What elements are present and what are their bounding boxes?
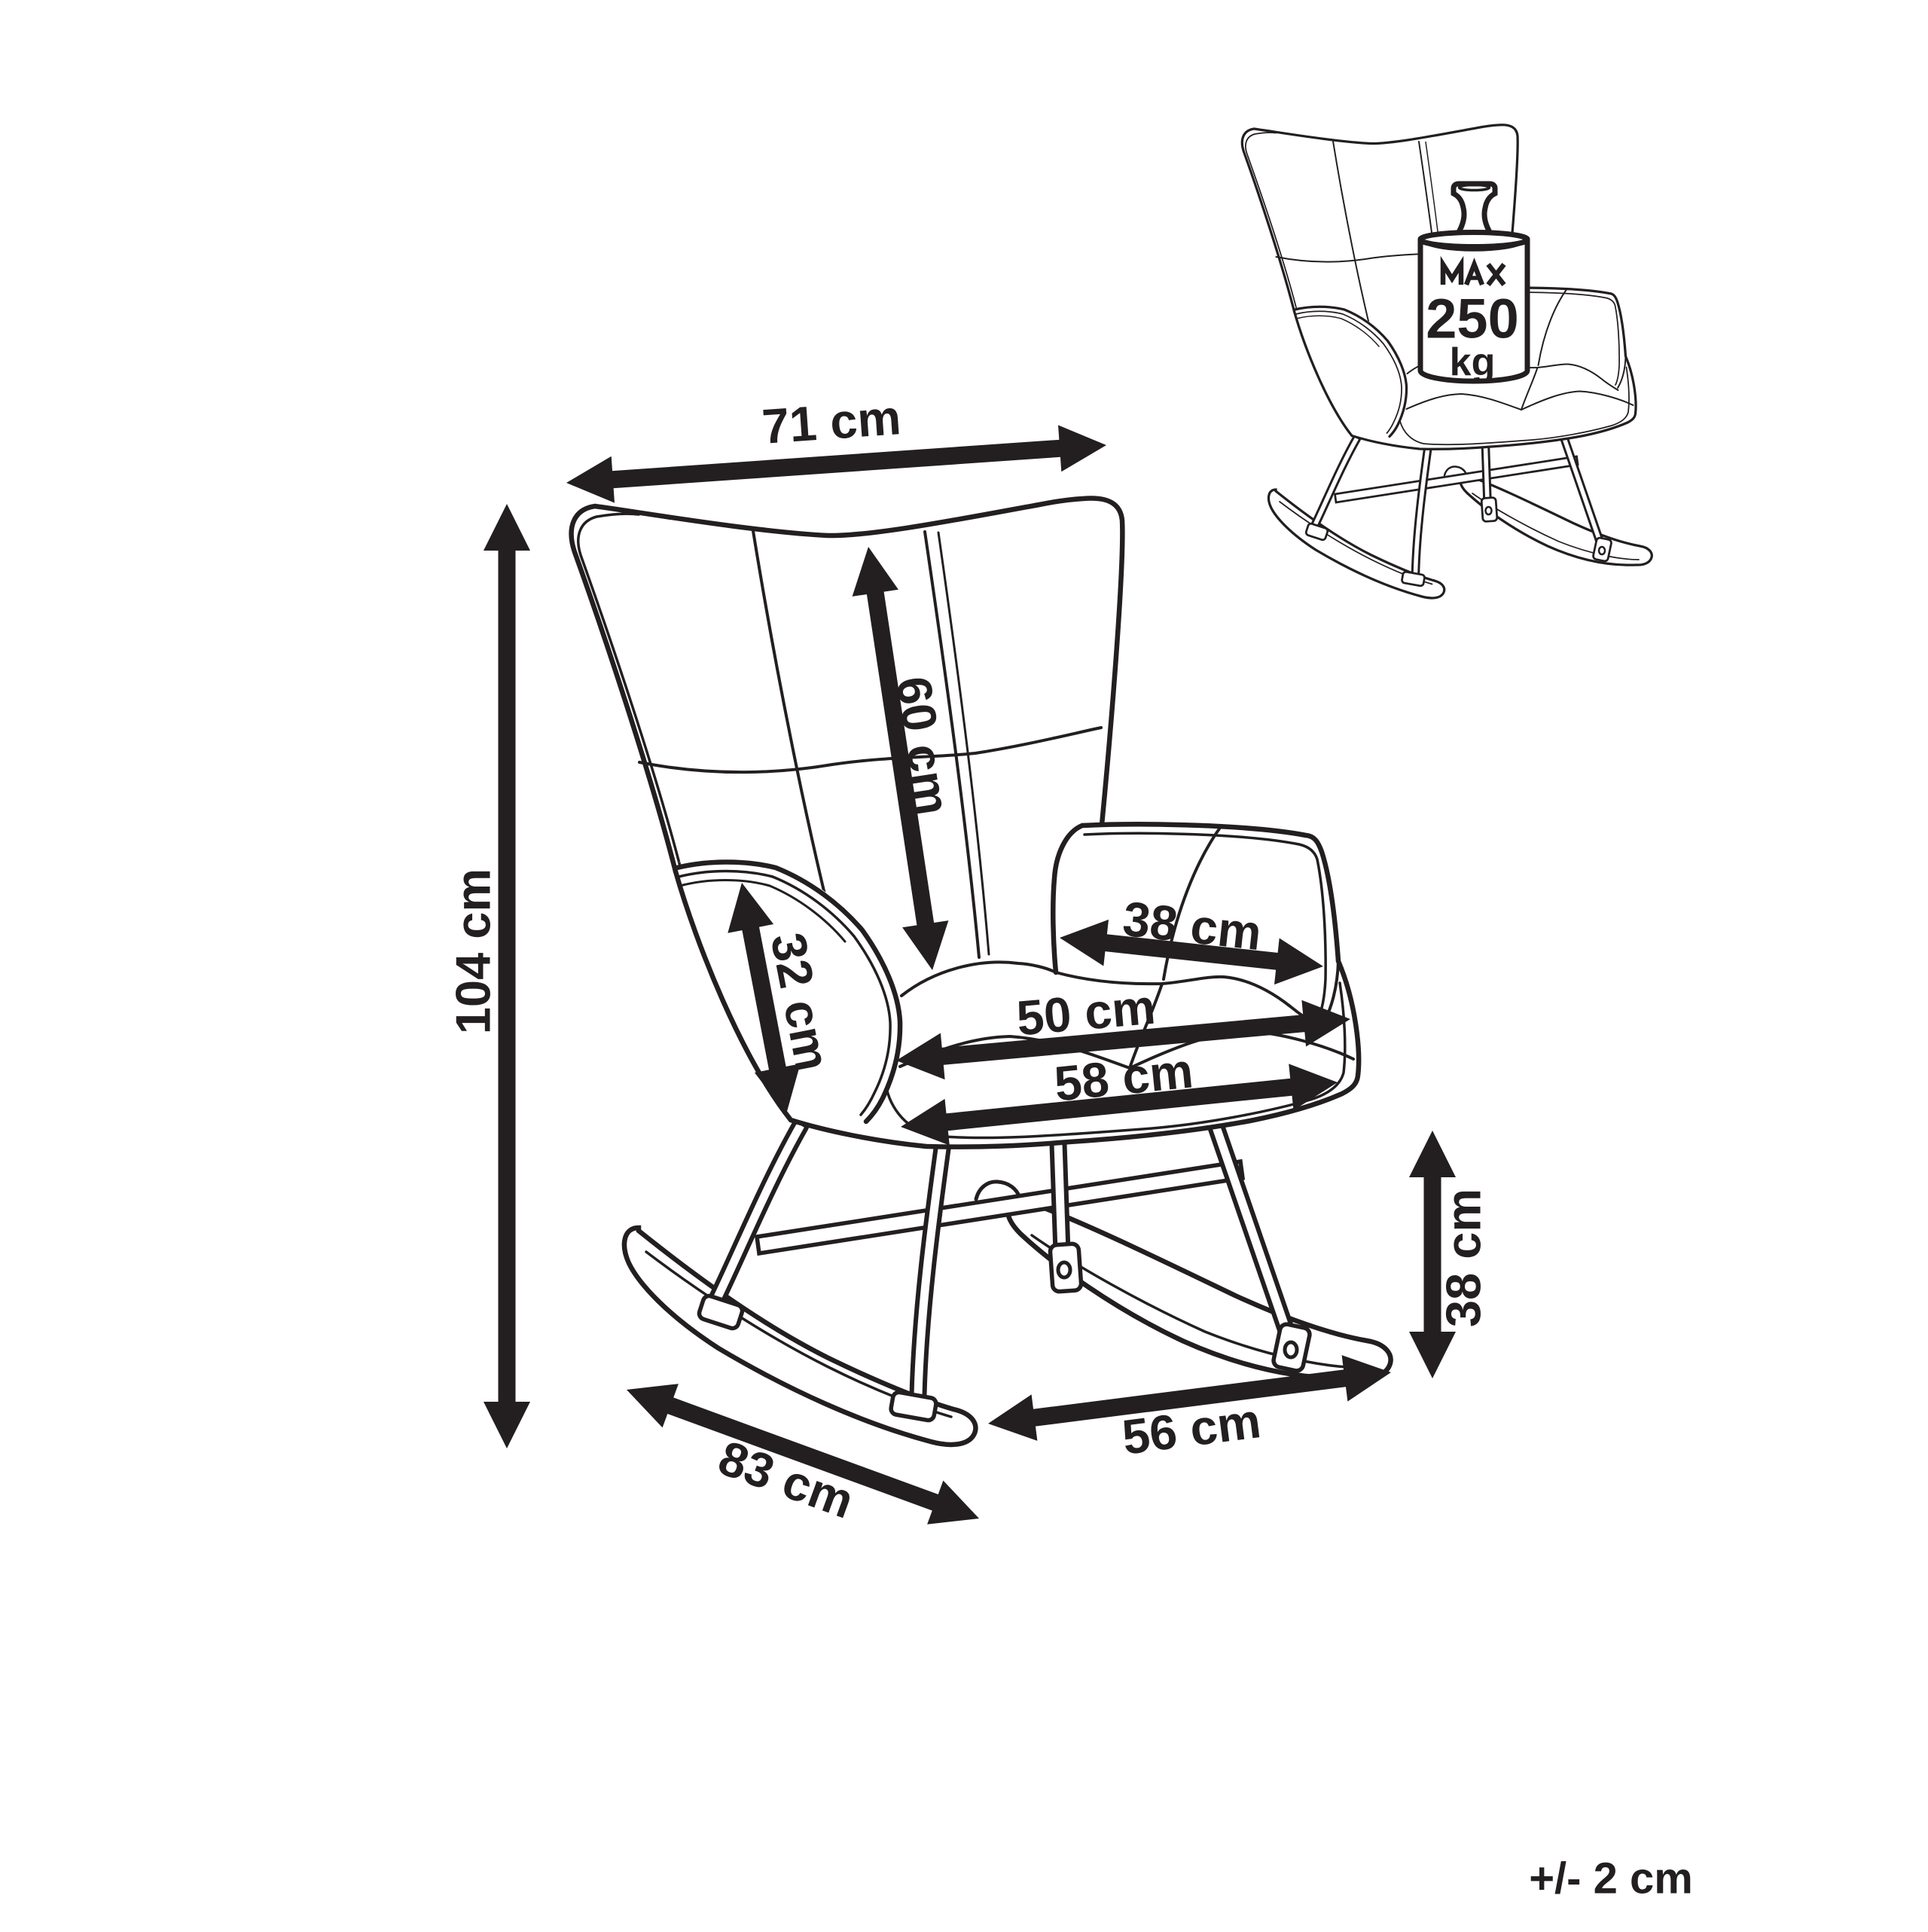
svg-text:kg: kg: [1450, 340, 1496, 384]
svg-text:104 cm: 104 cm: [446, 868, 501, 1034]
svg-text:38 cm: 38 cm: [1436, 1189, 1491, 1327]
svg-text:+/- 2 cm: +/- 2 cm: [1529, 1854, 1693, 1903]
svg-text:71 cm: 71 cm: [761, 389, 903, 454]
